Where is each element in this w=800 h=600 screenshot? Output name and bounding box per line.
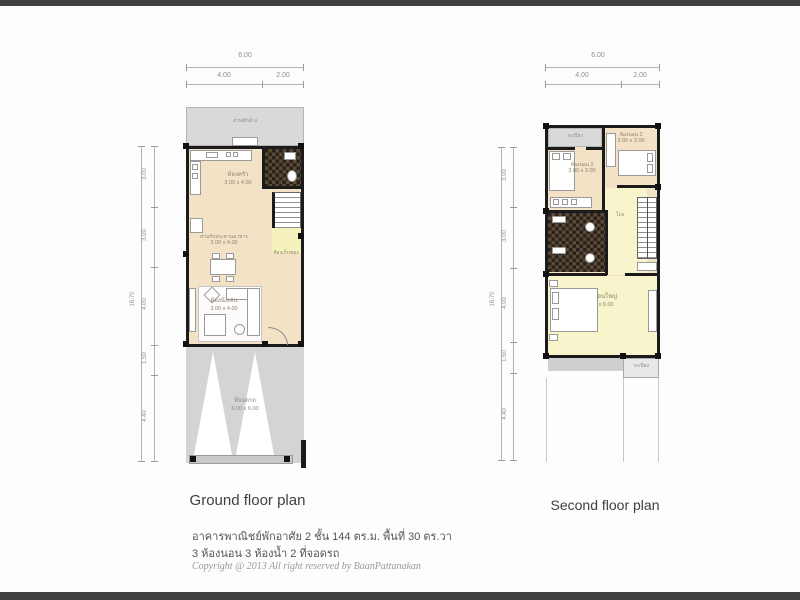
dresser-unit bbox=[553, 199, 559, 205]
front-balcony-label: ระเบียง bbox=[548, 133, 602, 139]
side-table bbox=[204, 314, 226, 336]
bathroom-sink bbox=[284, 152, 296, 160]
roof-edge-line bbox=[546, 378, 547, 462]
dim-tick bbox=[510, 342, 517, 343]
dim-tick bbox=[186, 81, 187, 88]
gf-dim-seg-right: 2.00 bbox=[263, 72, 303, 79]
dim-tick bbox=[151, 345, 158, 346]
pillow bbox=[563, 153, 571, 160]
storage-label: ห้องเก็บของ bbox=[254, 250, 318, 256]
sf-dim-line bbox=[545, 67, 660, 68]
sf-dim-seg-left: 4.00 bbox=[562, 72, 602, 79]
dim-tick bbox=[621, 81, 622, 88]
column bbox=[655, 184, 661, 190]
dim-tick bbox=[498, 147, 505, 148]
gate-strip bbox=[189, 455, 293, 464]
gate-post bbox=[284, 456, 290, 462]
ground-floor-title: Ground floor plan bbox=[165, 492, 330, 509]
column bbox=[183, 143, 189, 149]
kitchen-name: ห้องครัว bbox=[208, 172, 268, 180]
column bbox=[543, 208, 549, 214]
dining-size: 3.00 x 4.00 bbox=[192, 240, 256, 247]
pillow bbox=[647, 153, 653, 162]
toilet bbox=[585, 253, 595, 263]
column bbox=[620, 353, 626, 359]
sf-dim-seg-v1: 3.00 bbox=[502, 158, 508, 192]
dim-tick bbox=[545, 81, 546, 88]
dim-tick bbox=[510, 460, 517, 461]
refrigerator bbox=[190, 218, 203, 233]
pillow bbox=[552, 308, 559, 320]
gf-dim-line-v bbox=[154, 146, 155, 462]
gf-dim-seg-v1: 3.00 bbox=[142, 157, 148, 191]
washing-area-label: ส่วนซักล้าง bbox=[186, 118, 304, 124]
toilet bbox=[585, 222, 595, 232]
fence-post bbox=[301, 440, 306, 468]
roof-edge-line bbox=[658, 378, 659, 462]
wardrobe bbox=[606, 133, 616, 167]
dining-chair bbox=[226, 276, 234, 282]
bathroom-sink bbox=[552, 216, 566, 223]
bedroom2-size: 3.00 x 3.00 bbox=[560, 168, 604, 175]
night-stand bbox=[549, 334, 558, 341]
letterbox-bottom bbox=[0, 592, 800, 600]
bedroom2-label: ห้องนอน 2 3.00 x 3.00 bbox=[560, 162, 604, 175]
wall bbox=[625, 273, 660, 276]
wall bbox=[657, 125, 660, 358]
gate-post bbox=[190, 456, 196, 462]
living-size: 3.00 x 4.00 bbox=[196, 306, 252, 313]
sf-dim-line bbox=[545, 84, 660, 85]
kitchen-counter-top bbox=[190, 150, 252, 161]
sf-dim-total-width: 6.00 bbox=[578, 52, 618, 59]
bathroom-sink bbox=[552, 247, 566, 254]
floor-plan-sheet: { "letterbox": { "color": "#414141" }, "… bbox=[0, 0, 800, 600]
description-line-1: อาคารพาณิชย์พักอาศัย 2 ชั้น 144 ตร.ม. พื… bbox=[192, 527, 452, 545]
dining-table bbox=[210, 259, 236, 275]
pillow bbox=[552, 153, 560, 160]
dim-tick bbox=[138, 461, 145, 462]
column bbox=[298, 143, 304, 149]
carport-label: ที่จอดรถ 6.00 x 6.00 bbox=[210, 398, 280, 412]
column bbox=[655, 123, 661, 129]
wall bbox=[605, 210, 608, 275]
description-line-2: 3 ห้องนอน 3 ห้องน้ำ 2 ที่จอดรถ bbox=[192, 544, 339, 562]
sf-dim-line-v bbox=[513, 147, 514, 461]
wall bbox=[545, 273, 607, 276]
column bbox=[543, 353, 549, 359]
dim-tick bbox=[151, 461, 158, 462]
sf-dim-total-depth: 16.70 bbox=[490, 282, 496, 316]
gf-dim-total-width: 6.00 bbox=[225, 52, 265, 59]
wall bbox=[617, 185, 660, 188]
stove-burner bbox=[233, 152, 238, 157]
wall bbox=[545, 147, 575, 150]
dining-chair bbox=[212, 276, 220, 282]
gf-dim-seg-v4: 1.50 bbox=[142, 341, 148, 375]
copyright-line: Copyright @ 2013 All right reserved by B… bbox=[192, 561, 421, 572]
stair-cabinet bbox=[637, 262, 657, 271]
dim-tick bbox=[262, 81, 263, 88]
stove-burner bbox=[226, 152, 231, 157]
gf-dim-seg-left: 4.00 bbox=[204, 72, 244, 79]
tv-cabinet bbox=[189, 288, 196, 332]
dim-tick bbox=[186, 64, 187, 71]
dim-tick bbox=[303, 64, 304, 71]
rear-door-step bbox=[232, 137, 258, 146]
floor-lamp bbox=[234, 324, 245, 335]
gf-dim-seg-v2: 3.00 bbox=[142, 218, 148, 252]
pillow bbox=[552, 292, 559, 304]
rear-balcony-label: ระเบียง bbox=[623, 363, 659, 369]
living-name: ห้องนั่งเล่น bbox=[196, 298, 252, 306]
gf-dim-line bbox=[186, 84, 303, 85]
carport-name: ที่จอดรถ bbox=[210, 398, 280, 406]
kitchen-label: ห้องครัว 3.00 x 4.00 bbox=[208, 172, 268, 186]
kitchen-size: 3.00 x 4.00 bbox=[208, 180, 268, 187]
dim-tick bbox=[151, 267, 158, 268]
dim-tick bbox=[510, 373, 517, 374]
column bbox=[183, 251, 189, 257]
living-label: ห้องนั่งเล่น 3.00 x 4.00 bbox=[196, 298, 252, 312]
dim-tick bbox=[151, 207, 158, 208]
dim-tick bbox=[510, 207, 517, 208]
counter-unit bbox=[192, 164, 198, 170]
toilet bbox=[287, 170, 297, 182]
sf-dim-seg-right: 2.00 bbox=[620, 72, 660, 79]
dim-tick bbox=[151, 375, 158, 376]
sf-dim-seg-v4: 1.50 bbox=[502, 339, 508, 373]
dresser-unit bbox=[571, 199, 577, 205]
dim-tick bbox=[303, 81, 304, 88]
dim-tick bbox=[138, 146, 145, 147]
hall-label: โถง bbox=[605, 212, 635, 218]
column bbox=[298, 233, 304, 239]
wall bbox=[586, 147, 602, 150]
carport-size: 6.00 x 6.00 bbox=[210, 406, 280, 413]
kitchen-sink bbox=[206, 152, 218, 158]
wardrobe bbox=[648, 290, 657, 332]
sf-dim-seg-v3: 4.00 bbox=[502, 286, 508, 320]
stair-rail bbox=[647, 197, 648, 259]
dining-label: ส่วนรับประทานอาหาร 3.00 x 4.00 bbox=[192, 234, 256, 247]
dim-tick bbox=[659, 64, 660, 71]
dim-tick bbox=[498, 460, 505, 461]
column bbox=[655, 353, 661, 359]
gf-dim-total-depth: 16.70 bbox=[130, 282, 136, 316]
pillow bbox=[647, 164, 653, 173]
dim-tick bbox=[545, 64, 546, 71]
dim-tick bbox=[151, 146, 158, 147]
gf-dim-seg-v5: 4.40 bbox=[142, 399, 148, 433]
roof-edge-line bbox=[623, 378, 624, 462]
sf-dim-seg-v2: 3.00 bbox=[502, 219, 508, 253]
letterbox-top bbox=[0, 0, 800, 6]
dim-tick bbox=[510, 147, 517, 148]
night-stand bbox=[549, 280, 558, 287]
gf-dim-line bbox=[186, 67, 303, 68]
dim-tick bbox=[659, 81, 660, 88]
column bbox=[543, 271, 549, 277]
rear-ledge bbox=[548, 358, 623, 371]
column bbox=[543, 123, 549, 129]
sf-dim-seg-v5: 4.40 bbox=[502, 397, 508, 431]
counter-unit bbox=[192, 173, 198, 179]
dim-tick bbox=[510, 268, 517, 269]
second-floor-title: Second floor plan bbox=[520, 497, 690, 513]
gf-dim-seg-v3: 4.00 bbox=[142, 287, 148, 321]
dresser-unit bbox=[562, 199, 568, 205]
